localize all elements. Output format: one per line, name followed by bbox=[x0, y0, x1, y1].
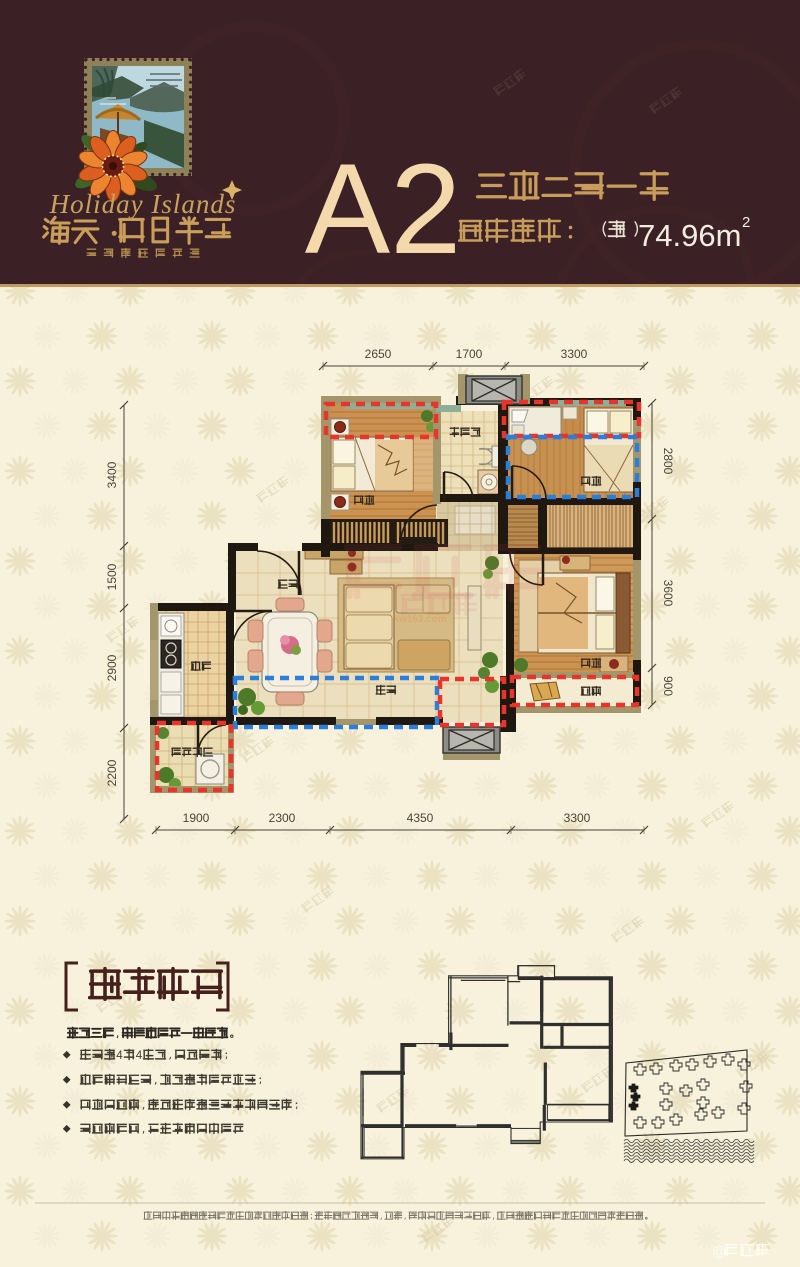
svg-text:4: 4 bbox=[136, 1049, 143, 1062]
svg-text:3400: 3400 bbox=[105, 461, 119, 488]
svg-text:1900: 1900 bbox=[183, 811, 210, 825]
svg-text:2200: 2200 bbox=[105, 759, 119, 786]
svg-text:2650: 2650 bbox=[365, 347, 392, 361]
svg-text:A2: A2 bbox=[305, 138, 462, 281]
svg-text:Holiday Islands: Holiday Islands bbox=[49, 189, 237, 219]
svg-text:@: @ bbox=[712, 1243, 726, 1259]
svg-text:3300: 3300 bbox=[564, 811, 591, 825]
svg-text:2: 2 bbox=[742, 214, 750, 231]
svg-text:3300: 3300 bbox=[561, 347, 588, 361]
svg-text:2300: 2300 bbox=[269, 811, 296, 825]
svg-text:2800: 2800 bbox=[661, 448, 675, 475]
svg-text:1700: 1700 bbox=[456, 347, 483, 361]
svg-text:900: 900 bbox=[661, 676, 675, 696]
svg-text:kw163.com: kw163.com bbox=[393, 614, 446, 625]
svg-text:2900: 2900 bbox=[105, 654, 119, 681]
svg-text:74.96m: 74.96m bbox=[638, 218, 741, 253]
svg-text:4350: 4350 bbox=[407, 811, 434, 825]
svg-text:3600: 3600 bbox=[661, 580, 675, 607]
svg-text:1500: 1500 bbox=[105, 563, 119, 590]
svg-text:4: 4 bbox=[116, 1049, 123, 1062]
